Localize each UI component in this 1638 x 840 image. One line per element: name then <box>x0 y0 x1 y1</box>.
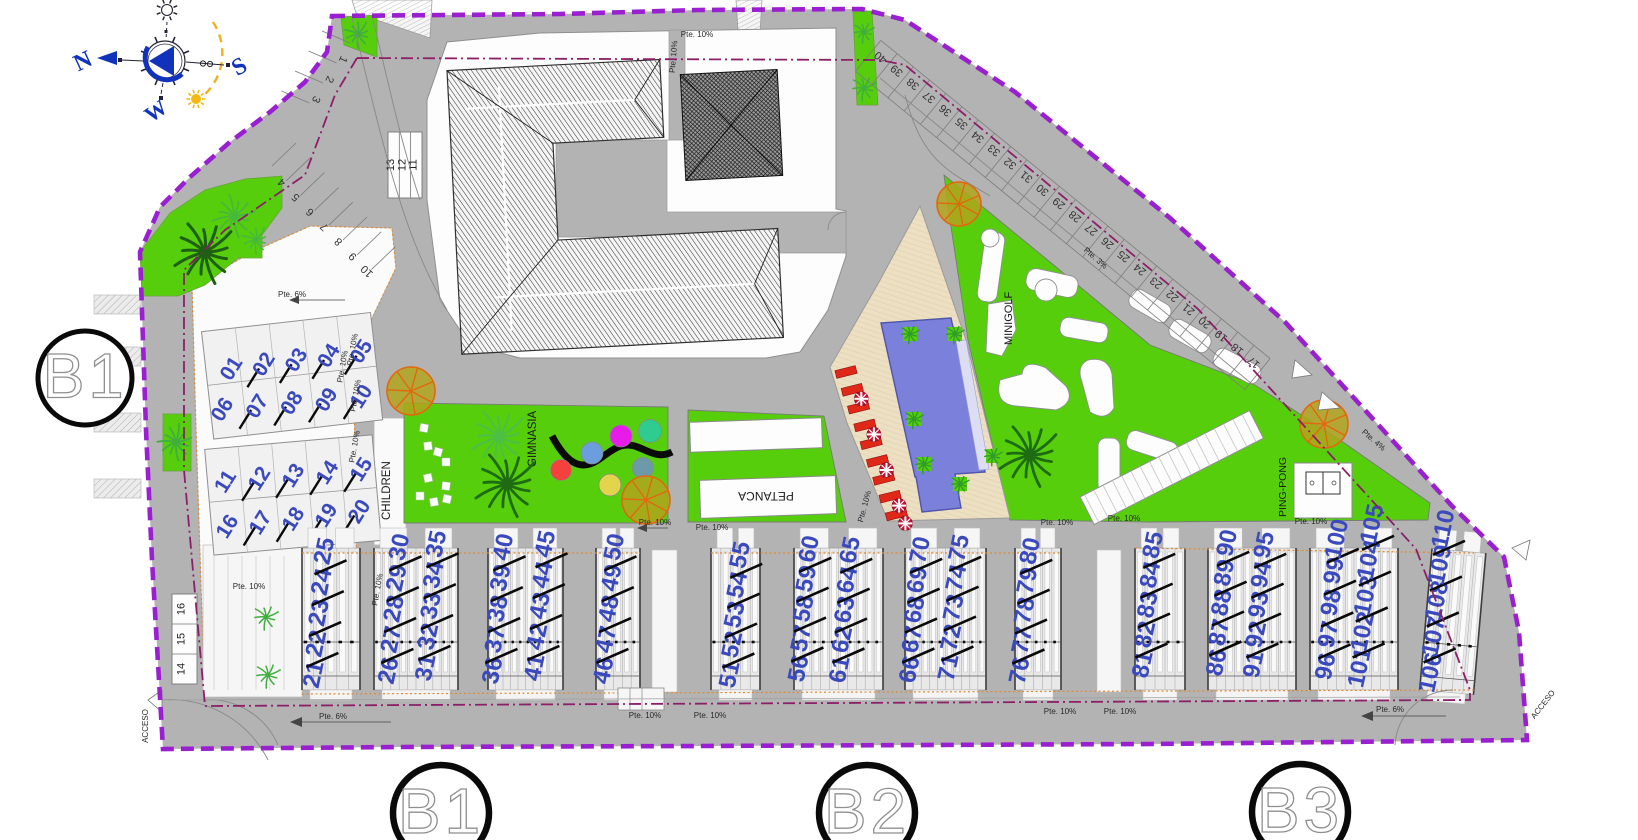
svg-text:PETANCA: PETANCA <box>738 489 794 503</box>
svg-text:25: 25 <box>308 535 340 567</box>
svg-text:Pte. 10%: Pte. 10% <box>1295 517 1327 526</box>
svg-text:Pte. 10%: Pte. 10% <box>1108 514 1140 523</box>
svg-text:MINIGOLF: MINIGOLF <box>1003 292 1015 345</box>
svg-text:13: 13 <box>385 159 397 171</box>
svg-text:Pte. 10%: Pte. 10% <box>681 30 713 39</box>
svg-text:40: 40 <box>487 531 519 563</box>
svg-text:Pte. 10%: Pte. 10% <box>696 523 728 532</box>
svg-text:75: 75 <box>943 532 975 564</box>
svg-text:ACCESO: ACCESO <box>141 709 150 743</box>
svg-text:B2: B2 <box>824 775 910 840</box>
svg-text:30: 30 <box>383 531 415 563</box>
svg-text:Pte. 10%: Pte. 10% <box>1044 707 1076 716</box>
svg-text:60: 60 <box>793 533 825 565</box>
svg-text:Pte. 10%: Pte. 10% <box>694 711 726 720</box>
svg-text:16: 16 <box>176 603 188 615</box>
svg-text:GIMNASIA: GIMNASIA <box>527 410 539 467</box>
svg-text:14: 14 <box>176 663 188 675</box>
svg-text:95: 95 <box>1248 529 1280 561</box>
svg-text:15: 15 <box>176 633 188 645</box>
svg-text:Pte. 10%: Pte. 10% <box>629 711 661 720</box>
svg-text:CHILDREN: CHILDREN <box>381 461 393 520</box>
svg-text:Pte. 10%: Pte. 10% <box>1041 518 1073 527</box>
svg-text:12: 12 <box>396 159 408 171</box>
svg-text:PING-PONG: PING-PONG <box>1277 457 1289 517</box>
svg-text:Pte. 10%: Pte. 10% <box>1104 707 1136 716</box>
svg-text:90: 90 <box>1211 527 1243 559</box>
svg-text:Pte. 10%: Pte. 10% <box>233 582 265 591</box>
svg-text:45: 45 <box>529 528 561 560</box>
svg-text:Pte. 6%: Pte. 6% <box>278 290 306 299</box>
svg-text:35: 35 <box>420 528 452 560</box>
svg-text:Pte. 6%: Pte. 6% <box>1376 705 1404 714</box>
svg-text:B1: B1 <box>42 342 127 412</box>
svg-text:50: 50 <box>598 531 630 563</box>
svg-text:55: 55 <box>724 539 756 571</box>
svg-text:65: 65 <box>834 534 866 566</box>
svg-text:B3: B3 <box>1257 774 1343 840</box>
svg-text:70: 70 <box>904 534 936 566</box>
svg-text:85: 85 <box>1137 529 1169 561</box>
svg-text:Pte. 6%: Pte. 6% <box>319 712 347 721</box>
svg-text:80: 80 <box>1014 535 1046 567</box>
svg-text:B1: B1 <box>398 775 484 840</box>
